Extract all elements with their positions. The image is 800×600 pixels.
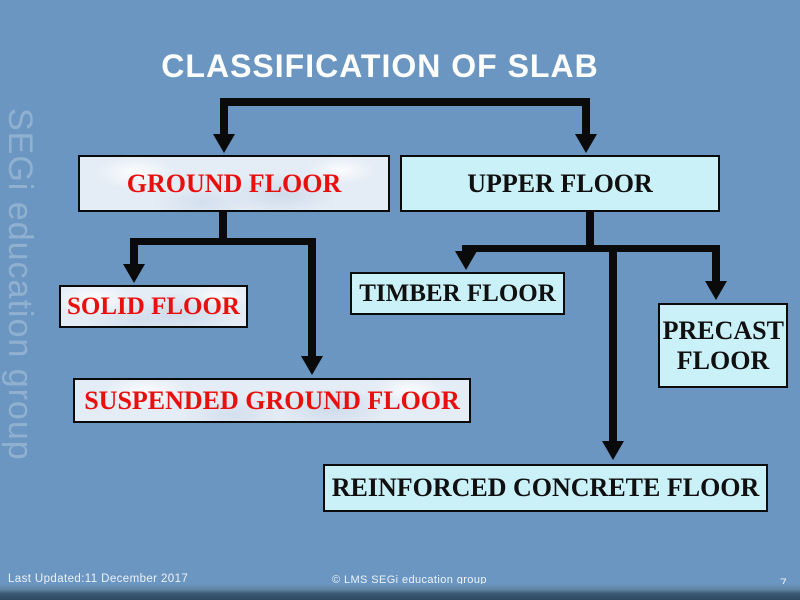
slide-canvas: SEGi education group CLASSIFICATION OF S… (0, 0, 800, 600)
connector-upper-right-drop (712, 245, 720, 283)
node-solid-floor: SOLID FLOOR (59, 285, 248, 328)
node-label: SOLID FLOOR (67, 293, 240, 321)
node-suspended-ground-floor: SUSPENDED GROUND FLOOR (73, 378, 471, 423)
node-label: SUSPENDED GROUND FLOOR (84, 386, 460, 415)
footer-bar (0, 584, 800, 600)
node-upper-floor: UPPER FLOOR (400, 155, 720, 212)
connector-top-left-drop (220, 98, 228, 136)
arrow-down-icon (301, 356, 323, 375)
node-label: TIMBER FLOOR (359, 280, 556, 308)
connector-top-right-drop (582, 98, 590, 136)
connector-upper-mid-drop (609, 245, 617, 442)
node-timber-floor: TIMBER FLOOR (350, 272, 565, 315)
arrow-down-icon (455, 251, 477, 270)
arrow-down-icon (213, 134, 235, 153)
arrow-down-icon (123, 264, 145, 283)
arrow-down-icon (705, 281, 727, 300)
node-label: UPPER FLOOR (467, 169, 653, 198)
connector-ground-left-drop (130, 238, 138, 266)
connector-ground-bar (130, 238, 316, 245)
node-label: GROUND FLOOR (127, 169, 342, 198)
node-label: PRECAST FLOOR (663, 316, 784, 374)
connector-upper-bar (462, 245, 718, 252)
slide-title: CLASSIFICATION OF SLAB (0, 48, 760, 85)
node-ground-floor: GROUND FLOOR (78, 155, 390, 212)
node-label: REINFORCED CONCRETE FLOOR (332, 473, 760, 502)
connector-ground-right-drop (308, 238, 316, 358)
connector-top-bar (220, 98, 590, 106)
arrow-down-icon (575, 134, 597, 153)
node-precast-floor: PRECAST FLOOR (658, 303, 788, 388)
node-reinforced-concrete-floor: REINFORCED CONCRETE FLOOR (323, 464, 768, 512)
arrow-down-icon (602, 441, 624, 460)
watermark-text: SEGi education group (0, 108, 39, 461)
